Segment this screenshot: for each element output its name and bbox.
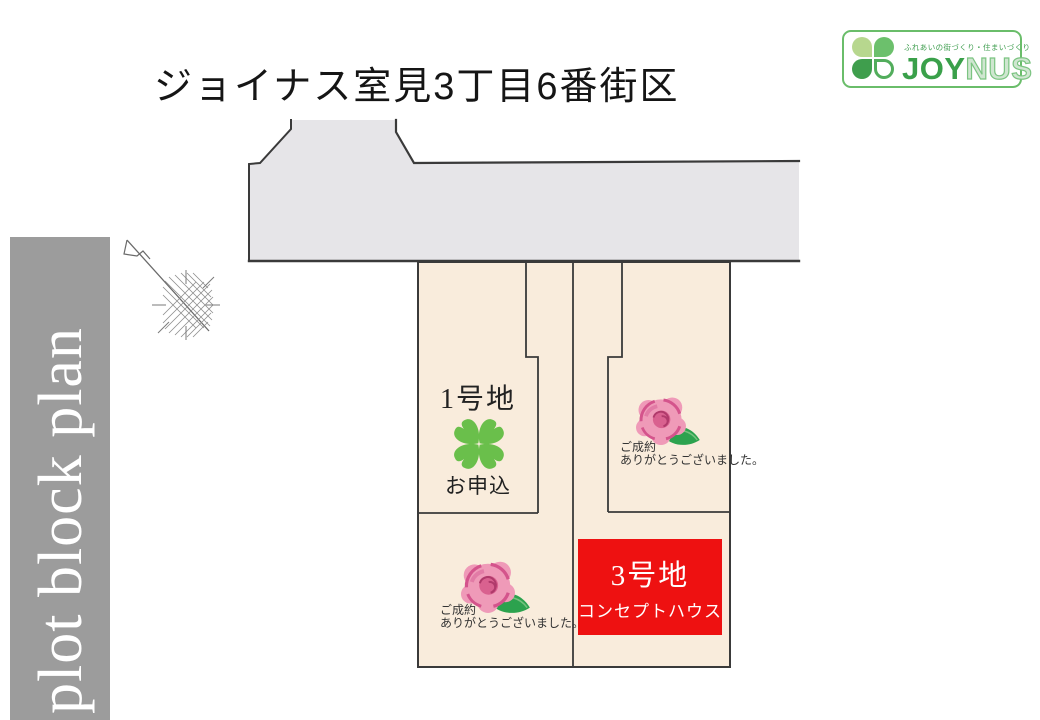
logo-petal	[852, 37, 872, 57]
lot-upper-right-sold-note: ご成約 ありがとうございました。	[620, 441, 764, 467]
logo-petal	[852, 59, 872, 79]
lot3-highlight-box: 3号地 コンセプトハウス	[578, 539, 722, 635]
lot1-name: 1号地	[418, 377, 538, 417]
sold-note-line2: ありがとうございました。	[620, 454, 764, 467]
page-title: ジョイナス室見3丁目6番街区	[154, 55, 680, 110]
side-banner-label: plot block plan	[26, 327, 97, 714]
lot-lower-left-sold-note: ご成約 ありがとうございました。	[440, 604, 584, 630]
logo-brand: JOYNUS	[902, 51, 1032, 87]
logo-petal	[874, 59, 894, 79]
road-shape	[249, 120, 799, 261]
lot3-name: 3号地	[611, 552, 690, 594]
flyer-page: { "header": { "title": "ジョイナス室見3丁目6番街区" …	[0, 0, 1040, 720]
clover-logo-icon	[852, 37, 896, 81]
logo-petal	[874, 37, 894, 57]
company-logo: ふれあいの街づくり・住まいづくり JOYNUS	[842, 30, 1022, 88]
logo-brand-light: NUS	[966, 51, 1033, 86]
logo-brand-bold: JOY	[902, 51, 966, 86]
north-arrow-icon	[124, 240, 220, 340]
lot3-subtitle: コンセプトハウス	[578, 597, 722, 622]
sold-note-line2: ありがとうございました。	[440, 617, 584, 630]
lot1-status: お申込	[418, 470, 538, 500]
